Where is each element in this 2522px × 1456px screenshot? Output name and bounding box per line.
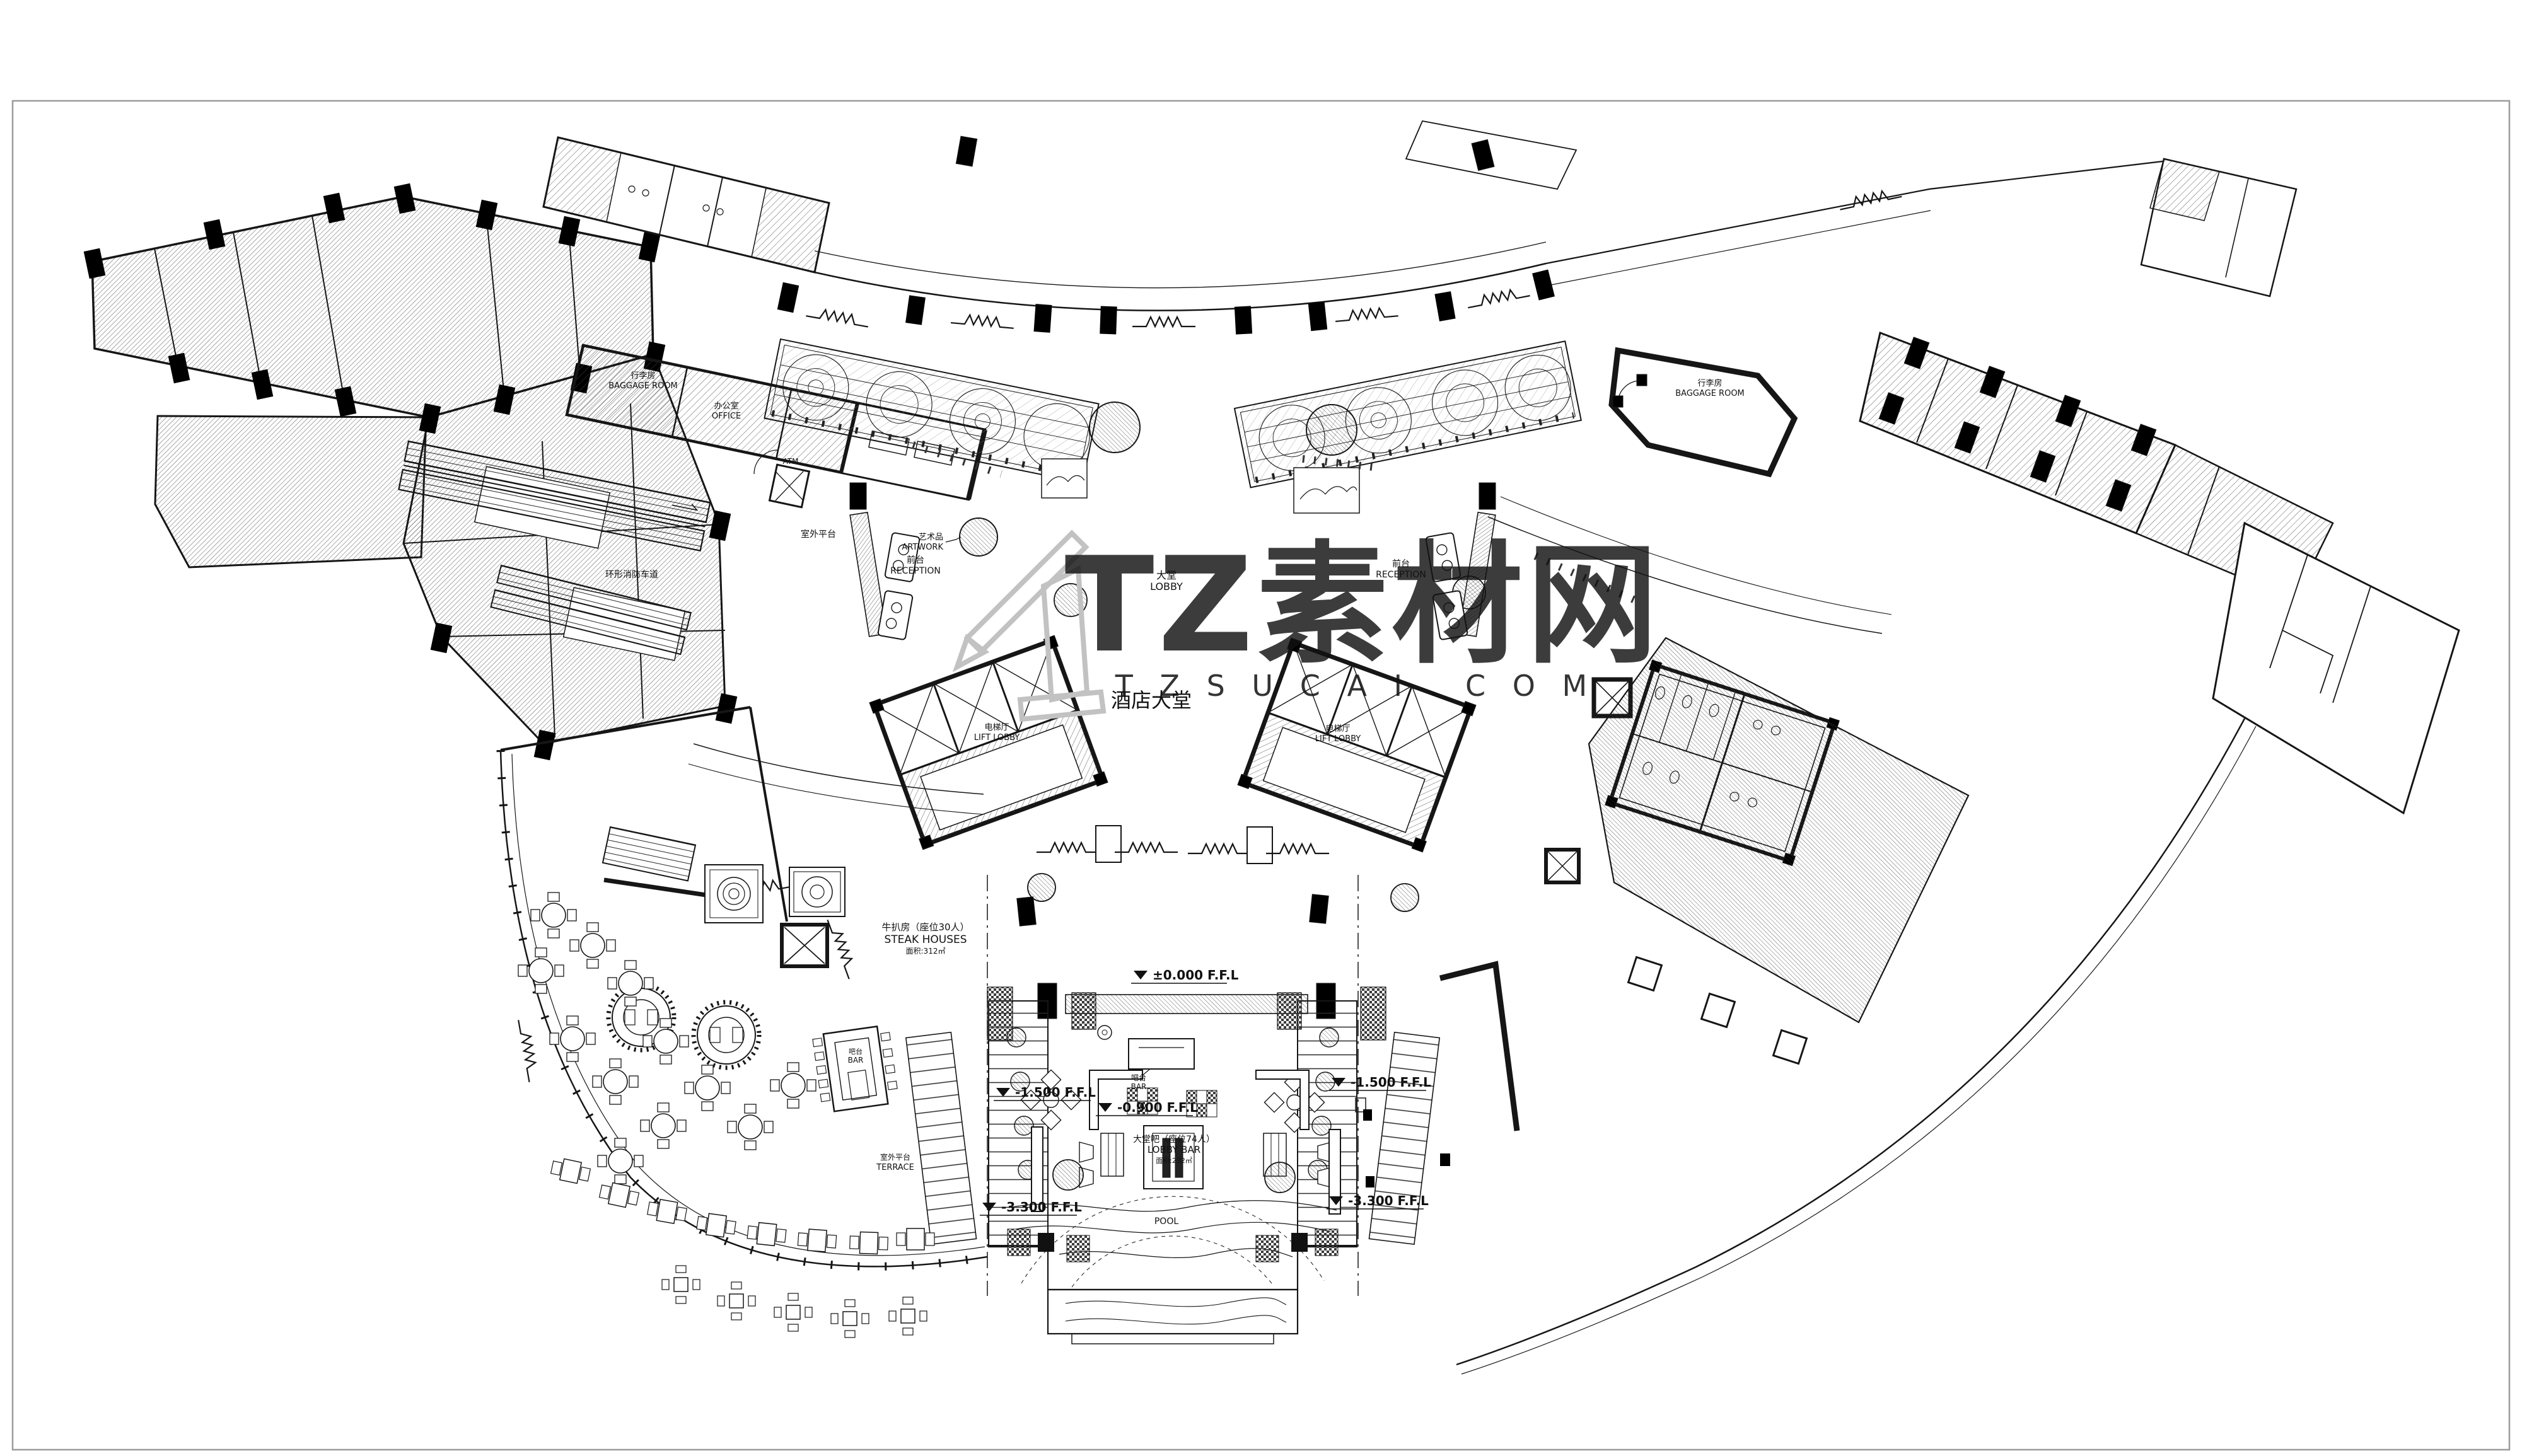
terrace-label-cn: 室外平台 xyxy=(880,1152,910,1162)
svg-text:-3.300 F.F.L: -3.300 F.F.L xyxy=(1348,1193,1429,1208)
restaurant-bar-label-cn: 吧台 xyxy=(849,1047,863,1056)
ornate-feature xyxy=(789,867,845,916)
reception-left-label-en: RECEPTION xyxy=(890,566,941,576)
baggage-left-label-cn: 行李房 xyxy=(630,371,655,381)
atm-room xyxy=(770,465,810,507)
water-features xyxy=(1017,826,1329,926)
right-wing xyxy=(1860,159,2459,813)
baggage-right-label-cn: 行李房 xyxy=(1697,378,1722,388)
steak-house-label-en: STEAK HOUSES xyxy=(884,933,967,946)
hotel-lobby-title: 酒店大堂 xyxy=(1111,688,1192,712)
bar-counter-label-cn: 吧台 xyxy=(1131,1073,1146,1082)
svg-text:±0.000 F.F.L: ±0.000 F.F.L xyxy=(1153,968,1239,983)
svg-text:-1.500 F.F.L: -1.500 F.F.L xyxy=(1015,1085,1096,1100)
restaurant-bar xyxy=(812,1025,899,1113)
watermark-brand: TZ素材网 xyxy=(1065,529,1662,682)
restaurant-bar-label-en: BAR xyxy=(848,1056,864,1065)
artwork-label-cn: 艺术品 xyxy=(919,533,943,542)
office-label-en: OFFICE xyxy=(712,412,741,421)
lobby-label-en: LOBBY xyxy=(1150,581,1183,592)
lift-lobby-left-label-en: LIFT LOBBY xyxy=(974,733,1020,742)
lobby-bar-label-cn: 大堂吧（座位74人） xyxy=(1133,1135,1215,1145)
office-label-cn: 办公室 xyxy=(714,401,738,411)
lift-lobby-left-label-cn: 电梯厅 xyxy=(984,723,1009,732)
level-marker-000: ±0.000 F.F.L xyxy=(1131,968,1239,983)
reception-right-label-en: RECEPTION xyxy=(1376,570,1426,580)
spiral-feature xyxy=(705,865,763,923)
lift-lobby-right-label-cn: 电梯厅 xyxy=(1325,724,1350,734)
lobby-bar-area: 面积:232㎡ xyxy=(1156,1157,1192,1165)
reception-left-label-cn: 前台 xyxy=(907,555,924,565)
steak-house-label-cn: 牛扒房（座位30人） xyxy=(881,922,969,933)
baggage-right-label-en: BAGGAGE ROOM xyxy=(1675,389,1745,398)
entrance-canopy xyxy=(815,121,2163,311)
bar-counter-label-en: BAR xyxy=(1131,1082,1147,1091)
svg-text:-3.300 F.F.L: -3.300 F.F.L xyxy=(1001,1199,1082,1215)
outdoor-platform-label: 室外平台 xyxy=(801,529,836,540)
baggage-room-right xyxy=(1612,350,1794,474)
canopy-columns xyxy=(777,187,1902,335)
svg-text:-1.500 F.F.L: -1.500 F.F.L xyxy=(1351,1075,1431,1090)
carpet-right xyxy=(1235,341,1581,487)
baggage-left-label-en: BAGGAGE ROOM xyxy=(608,381,678,391)
level-marker-090: -0.900 F.F.L xyxy=(1096,1100,1198,1116)
lobby-label-cn: 大堂 xyxy=(1156,569,1177,581)
fire-lane-label: 环形消防车道 xyxy=(605,569,658,580)
steak-house-area: 面积:312㎡ xyxy=(906,947,946,956)
atm-label: ATM xyxy=(783,457,799,466)
lift-lobby-right-label-en: LIFT LOBBY xyxy=(1315,734,1361,744)
svg-text:-0.900 F.F.L: -0.900 F.F.L xyxy=(1117,1100,1198,1115)
floorplan-drawing: TZ素材网 T Z S U C A I . C O M ±0.000 F.F.L… xyxy=(0,0,2522,1456)
right-terrace xyxy=(1589,638,1968,1063)
booth-table xyxy=(694,1002,759,1068)
pool-label: POOL xyxy=(1154,1216,1178,1227)
artwork-label-en: ARTWORK xyxy=(902,543,943,552)
terrace-label-en: TERRACE xyxy=(876,1163,914,1172)
reception-right-label-cn: 前台 xyxy=(1392,558,1410,569)
lobby-bar-label-en: LOBBY BAR xyxy=(1148,1144,1200,1155)
floorplan-page: TZ素材网 T Z S U C A I . C O M ±0.000 F.F.L… xyxy=(0,0,2522,1456)
